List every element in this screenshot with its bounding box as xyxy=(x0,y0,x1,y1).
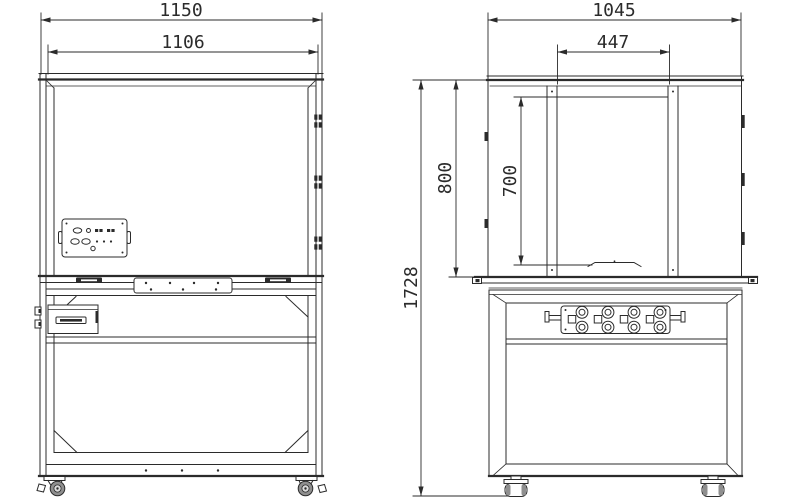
front-tabletop xyxy=(39,276,323,296)
hinge-mark-icon xyxy=(742,115,745,128)
arrow-left-icon xyxy=(488,17,498,22)
arrow-left-icon xyxy=(41,17,51,22)
dim-label-front-opening-width: 1106 xyxy=(161,32,204,53)
side-upper-body xyxy=(485,76,745,277)
front-view: 1150 1106 xyxy=(35,0,327,496)
table-handle-slot-right xyxy=(265,278,291,284)
table-handle-slot-left xyxy=(76,278,102,284)
side-connector-panel xyxy=(545,306,685,334)
caster-front-right xyxy=(296,477,327,496)
arrow-right-icon xyxy=(313,17,323,22)
dim-label-side-overall-depth: 1045 xyxy=(592,0,635,21)
dim-front-opening-width: 1106 xyxy=(48,32,318,74)
arrow-left-icon xyxy=(558,49,568,54)
hinge-mark-icon xyxy=(742,232,745,245)
front-mounting-plate xyxy=(134,278,232,293)
front-connector-plate xyxy=(59,219,131,257)
arrow-down-icon xyxy=(418,487,423,497)
arrow-right-icon xyxy=(309,49,319,54)
latch-mark-icon xyxy=(485,219,488,228)
caster-side-right xyxy=(701,476,725,497)
dim-label-side-opening-depth: 447 xyxy=(597,32,630,53)
arrow-right-icon xyxy=(660,49,670,54)
arrow-right-icon xyxy=(732,17,742,22)
side-view: 1045 447 1728 800 xyxy=(401,0,758,497)
gusset-bottom-left xyxy=(54,431,77,453)
dim-side-upper-height: 800 xyxy=(435,80,478,277)
dim-label-side-overall-height: 1728 xyxy=(401,266,422,309)
arrow-down-icon xyxy=(518,256,523,266)
dim-label-side-upper-height: 800 xyxy=(435,162,456,195)
caster-front-left xyxy=(37,477,65,496)
arrow-up-icon xyxy=(418,80,423,90)
latch-mark-icon xyxy=(485,132,488,141)
front-frame xyxy=(39,74,323,477)
technical-drawing: 1150 1106 xyxy=(0,0,790,503)
dim-label-front-overall-width: 1150 xyxy=(159,0,202,21)
dim-side-opening-height: 700 xyxy=(500,97,668,265)
door-hinge-icons xyxy=(314,115,322,250)
front-lower-cabinet xyxy=(35,296,323,477)
arrow-up-icon xyxy=(453,80,458,90)
hinge-mark-icon xyxy=(742,173,745,186)
arrow-left-icon xyxy=(48,49,58,54)
dim-label-side-opening-height: 700 xyxy=(500,165,521,198)
arrow-up-icon xyxy=(518,97,523,107)
side-tabletop xyxy=(473,277,758,288)
gusset-top-right xyxy=(286,297,308,318)
table-stop-bar xyxy=(588,263,641,267)
gusset-bottom-right xyxy=(285,431,308,453)
drawer-box xyxy=(48,305,99,334)
caster-side-left xyxy=(504,476,528,497)
drawing-canvas: 1150 1106 xyxy=(0,0,790,503)
arrow-down-icon xyxy=(453,268,458,278)
